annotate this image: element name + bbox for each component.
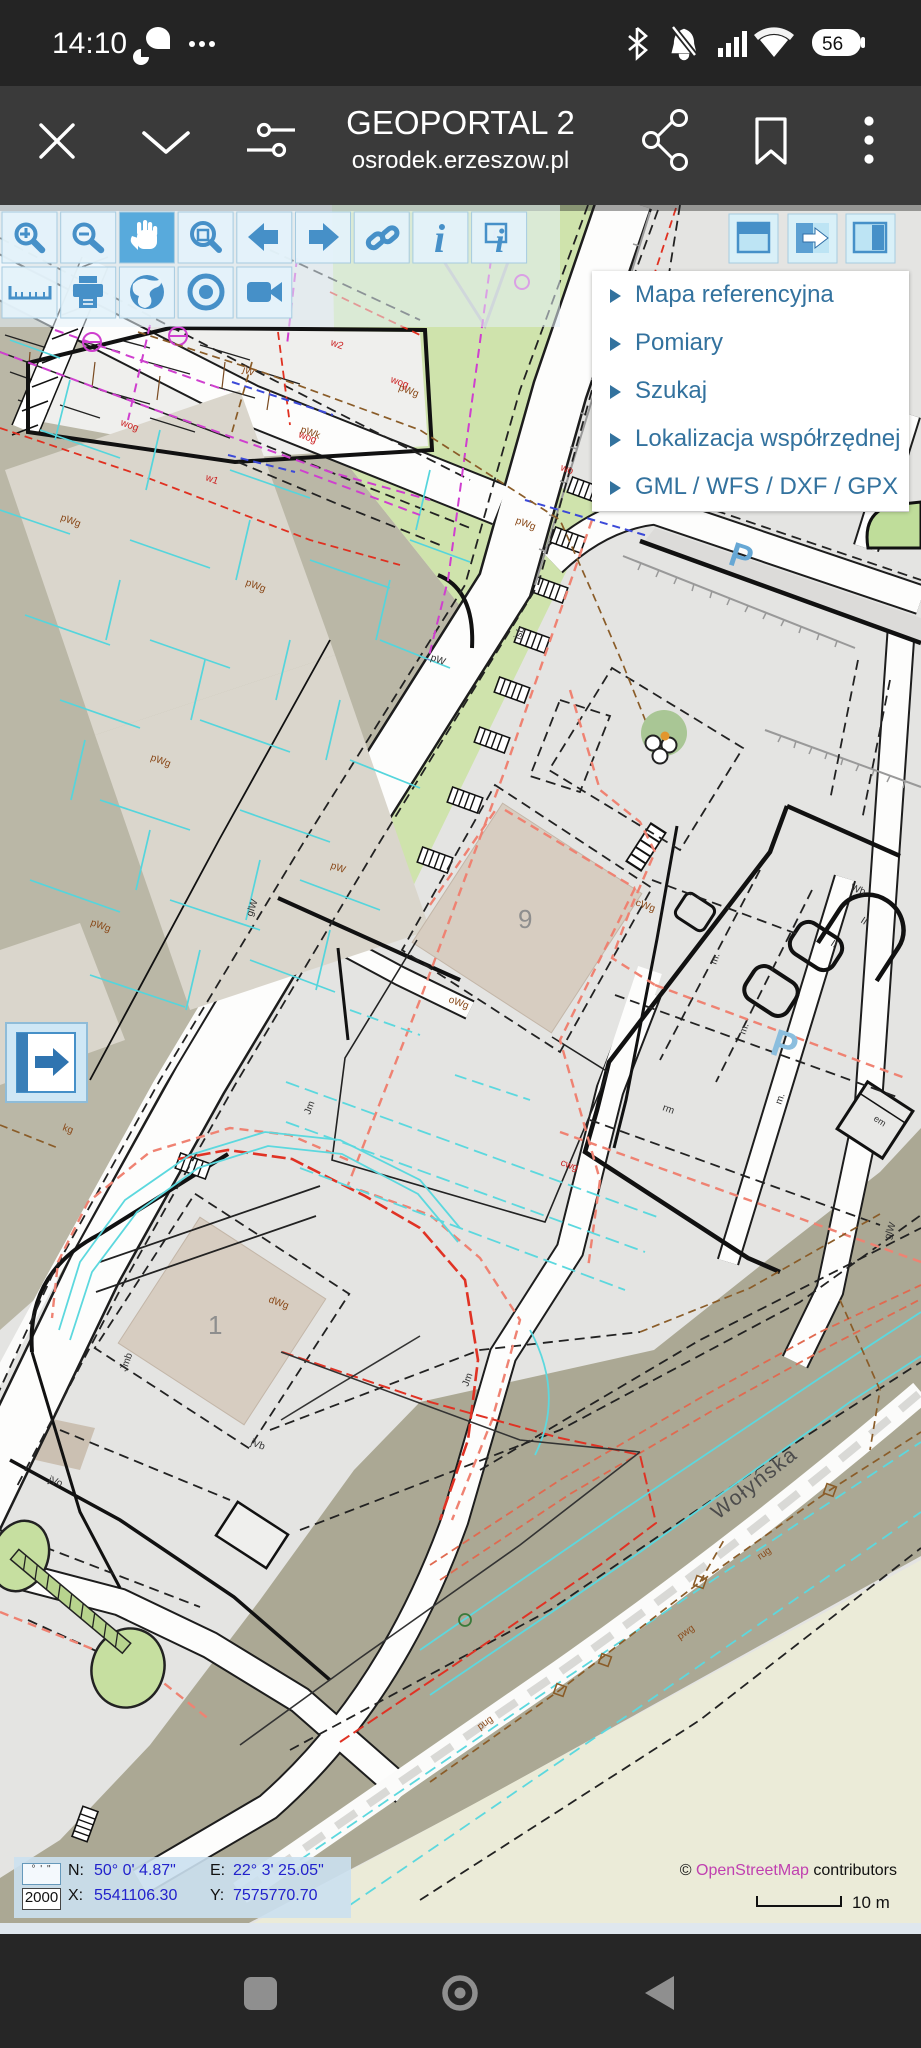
- svg-text:i: i: [434, 216, 445, 261]
- svg-text:i: i: [495, 223, 505, 260]
- svg-text:10 m: 10 m: [852, 1893, 890, 1912]
- svg-text:9: 9: [518, 904, 532, 934]
- svg-text:56: 56: [822, 34, 843, 55]
- svg-text:1: 1: [208, 1310, 222, 1340]
